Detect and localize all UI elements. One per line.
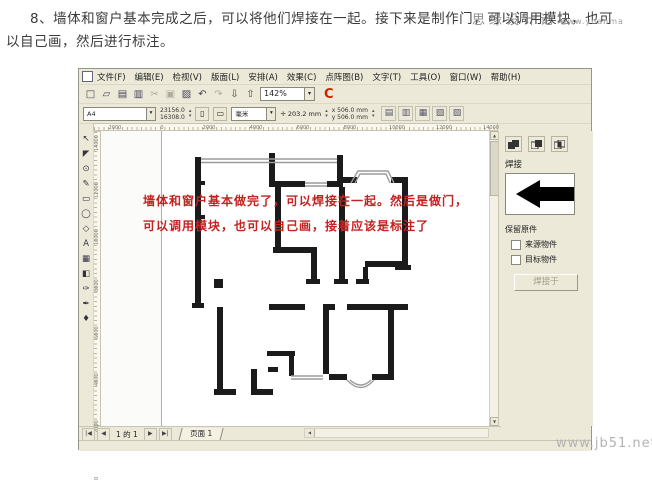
- rectangle-tool-icon[interactable]: ▭: [80, 193, 92, 205]
- weld-preview: [505, 173, 575, 215]
- menu-item[interactable]: 窗口(W): [450, 71, 482, 83]
- wall-segment: [289, 356, 294, 376]
- zoom-level-dropdown[interactable]: 142% ▾: [260, 87, 315, 101]
- menu-item[interactable]: 文件(F): [97, 71, 126, 83]
- wall-segment: [269, 181, 305, 187]
- wall-segment: [269, 304, 305, 310]
- interactive-transparency-tool-icon[interactable]: ◧: [80, 268, 92, 280]
- duplicate-y-field[interactable]: y 506.0 mm: [332, 114, 368, 121]
- freehand-tool-icon[interactable]: ✎: [80, 178, 92, 190]
- menu-item[interactable]: 帮助(H): [491, 71, 521, 83]
- status-bar: [79, 440, 591, 451]
- outline-tool-icon[interactable]: ✒: [80, 298, 92, 310]
- corel-logo-icon: C: [324, 87, 334, 102]
- yuanma-watermark: www.yuanma: [560, 17, 624, 26]
- align-buttons: ▤▥▦▧▨: [381, 106, 464, 121]
- duplicate-x-field[interactable]: x 506.0 mm: [332, 107, 368, 114]
- paper-size-dropdown[interactable]: A4 ▾: [83, 107, 156, 121]
- pick-tool-icon[interactable]: ↖: [80, 133, 92, 145]
- horizontal-scrollbar[interactable]: ◀: [304, 428, 489, 438]
- horizontal-ruler[interactable]: 200002000400060008000100001200014000: [93, 123, 498, 131]
- import-icon[interactable]: ⇩: [228, 88, 241, 101]
- checkbox-icon[interactable]: [511, 240, 521, 250]
- bay-window: [350, 380, 371, 385]
- paper-dimensions[interactable]: 23156.0 16308.0: [160, 107, 185, 121]
- trim-icon[interactable]: [528, 136, 545, 152]
- vertical-ruler[interactable]: 14000120001000080006000400020000: [93, 131, 101, 426]
- paper-size-value: A4: [87, 110, 96, 118]
- target-objects-label: 目标物件: [525, 254, 557, 265]
- annotation-text: 墙体和窗户基本做完了，可以焊接在一起。然后是做门， 可以调用模块，也可以自己画，…: [143, 189, 468, 239]
- menu-bar: 文件(F)编辑(E)检视(V)版面(L)安排(A)效果(C)点阵图(B)文字(T…: [79, 69, 591, 85]
- menu-item[interactable]: 编辑(E): [135, 71, 164, 83]
- annotation-line2: 可以调用模块，也可以自己画，接着应该是标注了: [143, 214, 468, 239]
- wall-segment: [372, 374, 394, 380]
- fill-tool-icon[interactable]: ♦: [80, 313, 92, 325]
- duplicate-spinner[interactable]: ▴▾: [372, 109, 375, 119]
- nudge-spinner[interactable]: ▴▾: [325, 109, 328, 119]
- page-tab-label: 页面 1: [190, 428, 212, 440]
- v-ruler-label: 10000: [94, 229, 100, 245]
- weld-to-button[interactable]: 焊接于: [514, 274, 578, 291]
- floor-plan[interactable]: [101, 131, 489, 426]
- wall-segment: [365, 261, 408, 267]
- wall-segment: [214, 389, 236, 395]
- wall-segment: [268, 367, 278, 372]
- wall-segment: [323, 310, 329, 374]
- zoom-tool-icon[interactable]: ⊙: [80, 163, 92, 175]
- wall-segment: [329, 374, 347, 380]
- coreldraw-window: 文件(F)编辑(E)检视(V)版面(L)安排(A)效果(C)点阵图(B)文字(T…: [78, 68, 592, 450]
- align-button-icon[interactable]: ▤: [381, 106, 396, 121]
- tutorial-line2: 以自己画，然后进行标注。: [6, 31, 650, 54]
- align-button-icon[interactable]: ▦: [415, 106, 430, 121]
- bay-window: [355, 174, 390, 183]
- shape-tool-icon[interactable]: ◤: [80, 148, 92, 160]
- scroll-left-icon[interactable]: ◀: [305, 429, 315, 437]
- units-value: 毫米: [235, 110, 248, 118]
- interactive-blend-tool-icon[interactable]: ▦: [80, 253, 92, 265]
- zoom-level-value: 142%: [264, 89, 287, 98]
- prev-page-button[interactable]: ◀: [97, 428, 110, 441]
- chevron-down-icon[interactable]: ▾: [146, 108, 155, 120]
- export-icon[interactable]: ⇧: [244, 88, 257, 101]
- menu-item[interactable]: 效果(C): [287, 71, 317, 83]
- wall-segment: [273, 247, 317, 253]
- eyedropper-tool-icon[interactable]: ✑: [80, 283, 92, 295]
- menu-item[interactable]: 工具(O): [410, 71, 440, 83]
- target-objects-checkbox[interactable]: 目标物件: [511, 254, 587, 265]
- jb51-watermark: www.jb51.net: [556, 436, 652, 451]
- wall-segment: [192, 303, 204, 308]
- v-ruler-label: 6000: [94, 326, 100, 339]
- cut-icon[interactable]: ✂: [148, 88, 161, 101]
- wall-segment: [323, 304, 335, 310]
- align-button-icon[interactable]: ▥: [398, 106, 413, 121]
- wall-segment: [347, 304, 408, 310]
- ellipse-tool-icon[interactable]: ◯: [80, 208, 92, 220]
- nudge-offset-field[interactable]: ✛ 203.2 mm: [280, 110, 321, 118]
- property-bar: A4 ▾ 23156.0 16308.0 ▴▾ ▯ ▭ 毫米 ▾ ✛ 203.2…: [79, 104, 591, 124]
- wall-segment: [201, 181, 205, 185]
- copy-icon[interactable]: ▣: [164, 88, 177, 101]
- menu-item[interactable]: 文字(T): [372, 71, 401, 83]
- shaping-docker: 焊接 保留原件 来源物件 目标物件 焊接于: [498, 131, 593, 426]
- chevron-down-icon[interactable]: ▾: [266, 108, 275, 120]
- shaping-mode-label[interactable]: 焊接: [505, 158, 587, 170]
- undo-icon[interactable]: ↶: [196, 88, 209, 101]
- menu-item[interactable]: 版面(L): [211, 71, 239, 83]
- last-page-button[interactable]: ▶|: [159, 428, 172, 441]
- wall-segment: [306, 279, 320, 284]
- align-button-icon[interactable]: ▧: [432, 106, 447, 121]
- v-ruler-label: 14000: [94, 135, 100, 151]
- intersect-icon[interactable]: [551, 136, 568, 152]
- save-icon[interactable]: ▤: [116, 88, 129, 101]
- menu-item[interactable]: 点阵图(B): [325, 71, 363, 83]
- weld-icon[interactable]: [505, 136, 522, 152]
- standard-toolbar: □▱▤▥✂▣▨↶↷⇩⇧ 142% ▾ C: [79, 85, 591, 104]
- align-button-icon[interactable]: ▨: [449, 106, 464, 121]
- wall-segment: [363, 267, 368, 281]
- wall-segment: [214, 279, 223, 288]
- landscape-button[interactable]: ▭: [213, 107, 227, 121]
- drawing-canvas[interactable]: 墙体和窗户基本做完了，可以焊接在一起。然后是做门， 可以调用模块，也可以自己画，…: [101, 131, 489, 426]
- paper-height-field[interactable]: 16308.0: [160, 114, 185, 121]
- paste-icon[interactable]: ▨: [180, 88, 193, 101]
- polygon-tool-icon[interactable]: ◇: [80, 223, 92, 235]
- units-dropdown[interactable]: 毫米 ▾: [231, 107, 276, 121]
- chevron-down-icon[interactable]: ▾: [304, 88, 314, 100]
- menu-item[interactable]: 安排(A): [248, 71, 277, 83]
- text-tool-icon[interactable]: A: [80, 238, 92, 250]
- checkbox-icon[interactable]: [511, 255, 521, 265]
- annotation-line1: 墙体和窗户基本做完了，可以焊接在一起。然后是做门，: [143, 189, 468, 214]
- wall-segment: [388, 310, 394, 374]
- page-info: 1 的 1: [116, 429, 138, 440]
- weld-arrow-icon: [506, 174, 574, 214]
- next-page-button[interactable]: ▶: [144, 428, 157, 441]
- new-document-icon[interactable]: □: [84, 88, 97, 101]
- keep-original-label: 保留原件: [505, 224, 587, 235]
- first-page-button[interactable]: |◀: [82, 428, 95, 441]
- paper-width-field[interactable]: 23156.0: [160, 107, 185, 114]
- wall-segment: [356, 279, 369, 284]
- wall-segment: [267, 351, 295, 356]
- open-folder-icon[interactable]: ▱: [100, 88, 113, 101]
- dimension-spinner[interactable]: ▴▾: [189, 109, 192, 119]
- v-ruler-label: 8000: [94, 279, 100, 292]
- v-ruler-label: 12000: [94, 182, 100, 198]
- wall-segment: [311, 253, 317, 281]
- v-ruler-label: 4000: [94, 373, 100, 386]
- wall-segment: [217, 307, 223, 393]
- menu-item[interactable]: 检视(V): [173, 71, 202, 83]
- duplicate-distance[interactable]: x 506.0 mm y 506.0 mm: [332, 107, 368, 121]
- wall-segment: [251, 389, 273, 395]
- redo-icon[interactable]: ↷: [212, 88, 225, 101]
- portrait-button[interactable]: ▯: [195, 107, 209, 121]
- source-objects-label: 来源物件: [525, 239, 557, 250]
- toolbar-icons: □▱▤▥✂▣▨↶↷⇩⇧: [84, 88, 257, 101]
- print-icon[interactable]: ▥: [132, 88, 145, 101]
- source-objects-checkbox[interactable]: 来源物件: [511, 239, 587, 250]
- shaping-mode-icons: [505, 136, 587, 152]
- vertical-scrollbar[interactable]: ▲ ▼: [489, 131, 498, 426]
- toolbox: ↖◤⊙✎▭◯◇A▦◧✑✒♦: [79, 131, 94, 428]
- forum-watermark: 思缘设计论坛: [472, 9, 574, 28]
- wall-segment: [334, 279, 348, 284]
- page-tab[interactable]: 页面 1: [178, 428, 223, 441]
